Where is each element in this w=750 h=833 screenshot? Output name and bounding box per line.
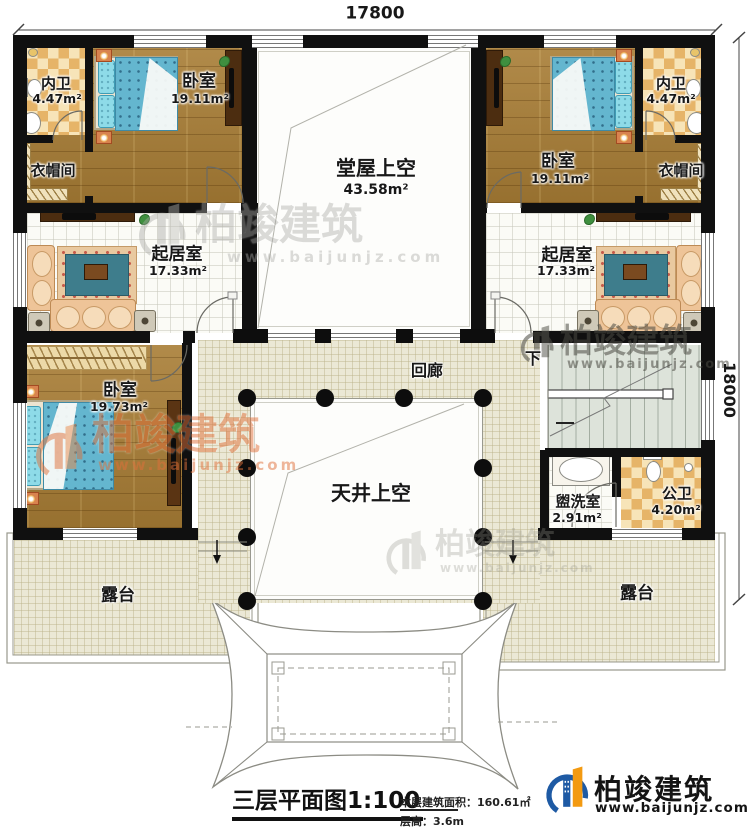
drawing-title-text: 三层平面图 [232, 788, 347, 814]
room-label-washroom: 盥洗室 [555, 495, 600, 510]
room-label-corridor: 回廊 [411, 363, 443, 379]
room-label-closet-tl: 衣帽间 [30, 164, 75, 179]
room-label-courtyard-void: 天井上空 [331, 483, 411, 503]
room-area-bed-tr: 19.11m² [531, 173, 589, 186]
room-label-hall-void: 堂屋上空 [336, 158, 416, 178]
room-area-living-right: 17.33m² [537, 265, 595, 278]
room-area-washroom: 2.91m² [552, 512, 601, 525]
floor-area-note: 本层建筑面积：160.61㎡ [400, 794, 530, 810]
floor-height-note: 层高：3.6m [400, 813, 464, 829]
room-label-bed-bl: 卧室 [103, 383, 137, 400]
watermark-logo-icon [32, 414, 86, 486]
floor-plan: 柏竣建筑 www.baijunjz.com 柏竣建筑 www.baijunjz.… [0, 0, 750, 833]
annotation-overlay [0, 0, 750, 833]
brand-logo-icon [543, 760, 591, 820]
room-label-closet-tr: 衣帽间 [658, 164, 703, 179]
room-area-bath-tr: 4.47m² [646, 93, 695, 106]
room-label-bath-tl: 内卫 [41, 77, 71, 92]
dimension-top: 17800 [345, 6, 404, 23]
room-area-wc: 4.20m² [651, 504, 700, 517]
room-area-bath-tl: 4.47m² [32, 93, 81, 106]
room-label-living-left: 起居室 [152, 247, 203, 264]
dimension-right: 18000 [721, 362, 737, 418]
stairs-down-label: 下 [525, 351, 541, 367]
room-area-living-left: 17.33m² [149, 265, 207, 278]
room-label-terrace-left: 露台 [101, 588, 135, 605]
room-label-bed-tr: 卧室 [541, 154, 575, 171]
room-label-terrace-right: 露台 [620, 586, 654, 603]
room-area-bed-tl: 19.11m² [171, 93, 229, 106]
room-area-bed-bl: 19.73m² [90, 401, 148, 414]
room-label-wc: 公卫 [662, 487, 692, 502]
room-label-bed-tl: 卧室 [182, 74, 216, 91]
room-label-bath-tr: 内卫 [656, 77, 686, 92]
note-divider [400, 809, 458, 811]
drawing-title: 三层平面图1:100 [232, 789, 423, 821]
watermark-logo-icon [383, 526, 429, 580]
room-area-hall-void: 43.58m² [343, 183, 408, 197]
brand-url: www.baijunjz.com [595, 800, 749, 816]
